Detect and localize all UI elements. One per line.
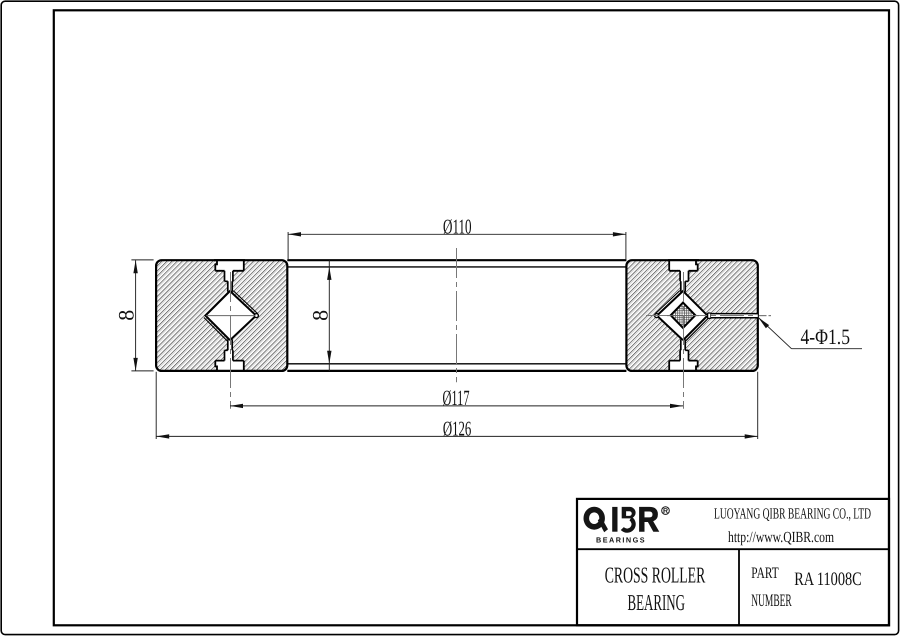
- svg-text:RA 11008C: RA 11008C: [794, 569, 862, 590]
- svg-text:Ø110: Ø110: [443, 215, 472, 239]
- svg-text:BEARING: BEARING: [627, 590, 685, 615]
- svg-text:R: R: [663, 508, 668, 515]
- svg-text:CROSS ROLLER: CROSS ROLLER: [605, 563, 706, 588]
- svg-text:8: 8: [114, 310, 139, 321]
- svg-text:8: 8: [308, 310, 333, 321]
- svg-text:BEARINGS: BEARINGS: [596, 535, 646, 544]
- svg-text:http://www.QIBR.com: http://www.QIBR.com: [728, 529, 834, 546]
- svg-text:Ø126: Ø126: [443, 417, 472, 441]
- svg-text:NUMBER: NUMBER: [751, 590, 792, 610]
- svg-text:4-Φ1.5: 4-Φ1.5: [801, 324, 851, 349]
- svg-text:LUOYANG QIBR BEARING CO., LTD: LUOYANG QIBR BEARING CO., LTD: [714, 505, 871, 522]
- svg-text:PART: PART: [751, 565, 779, 582]
- svg-text:Ø117: Ø117: [443, 386, 470, 410]
